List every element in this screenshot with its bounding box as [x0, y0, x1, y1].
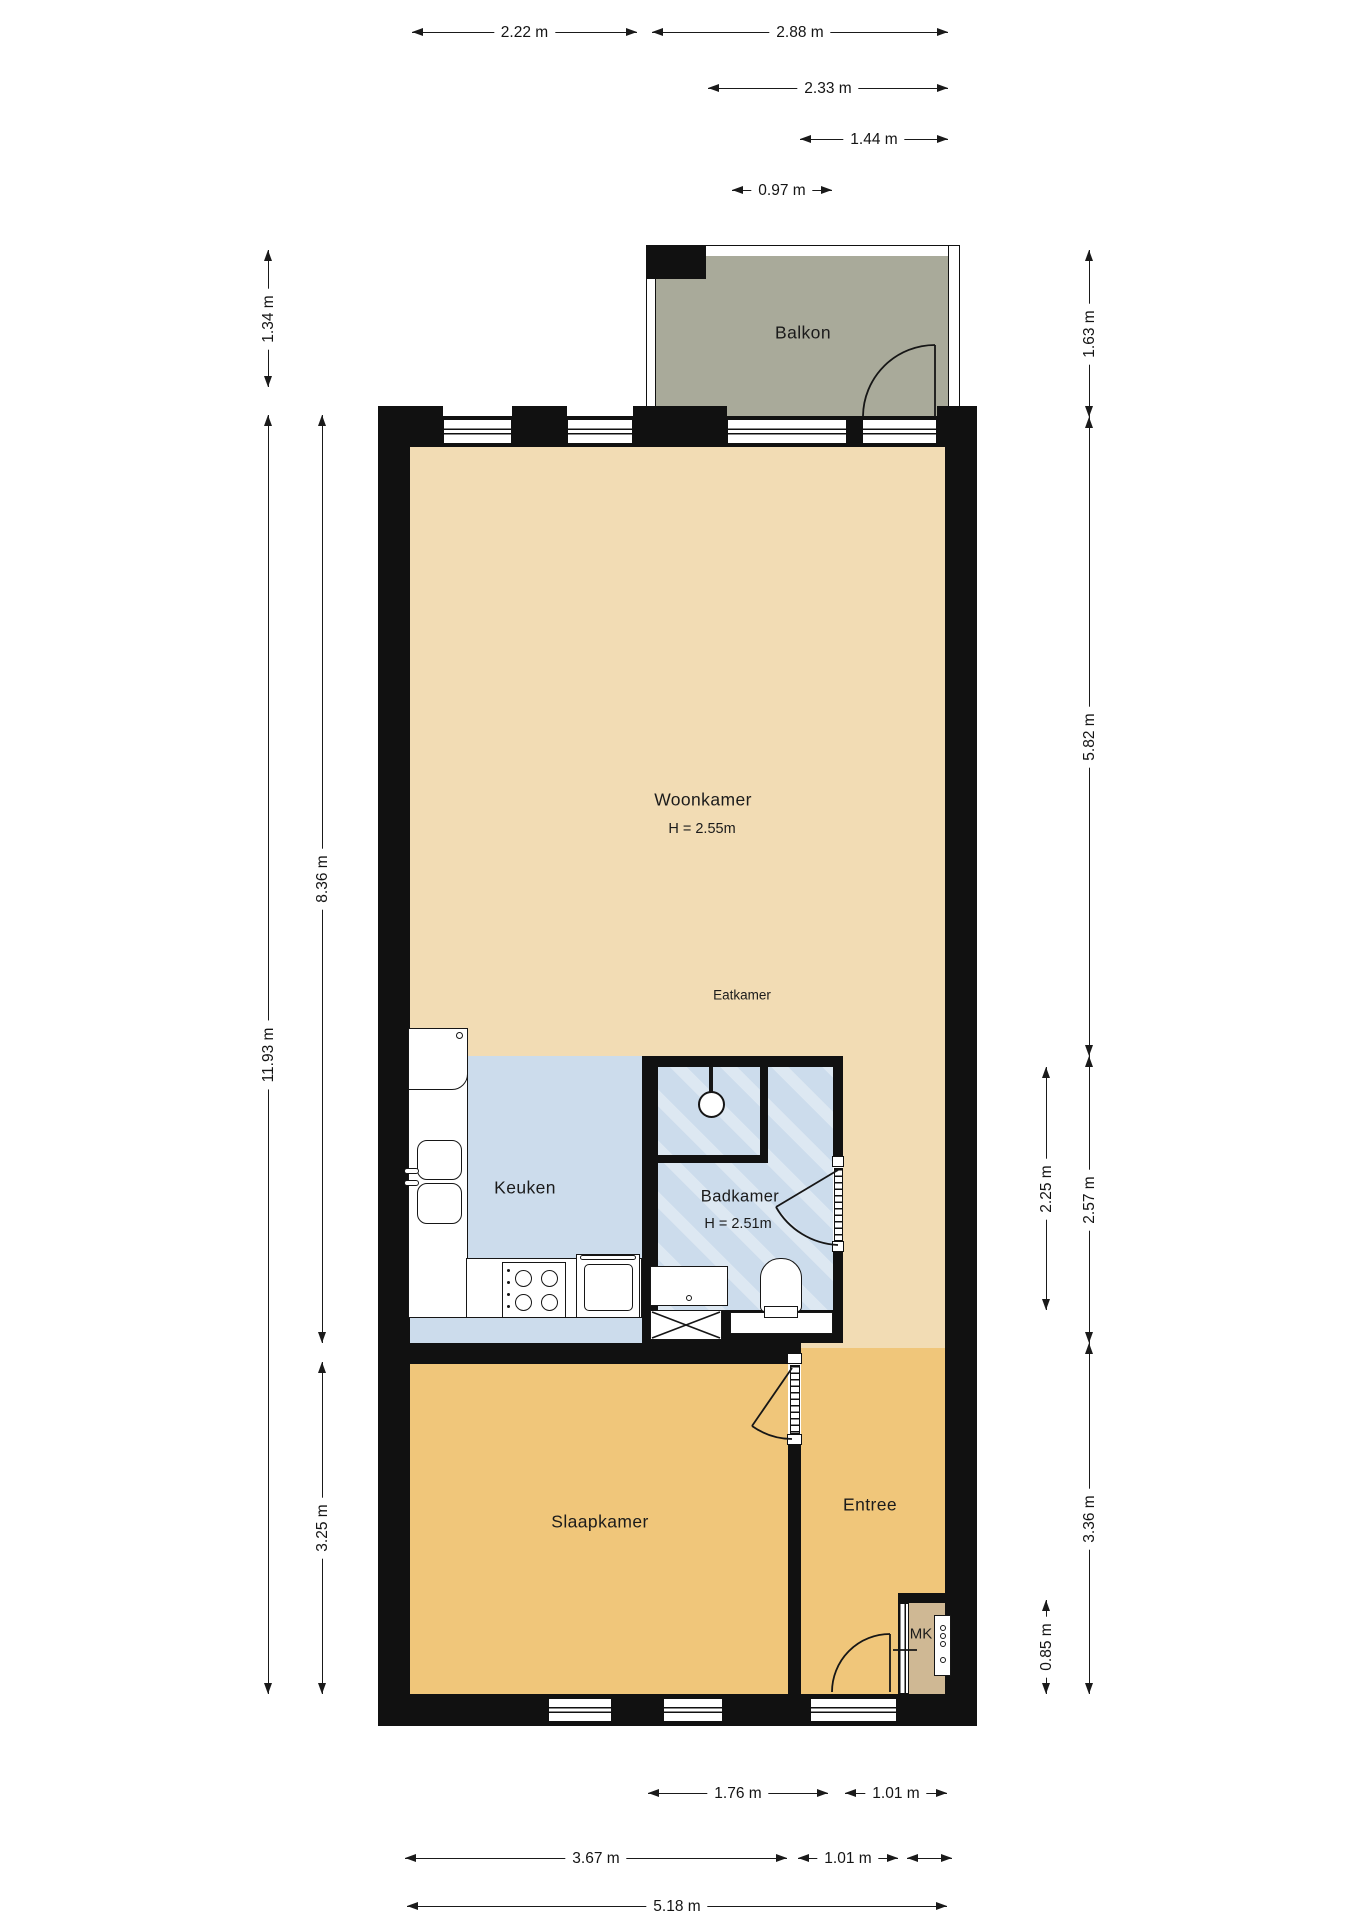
washing-machine: [650, 1310, 722, 1340]
stove-knob: [507, 1305, 510, 1308]
badkamer-door-jamb: [832, 1156, 844, 1167]
dim-right-4: 2.57 m: [1089, 1056, 1090, 1343]
dim-label: 1.01 m: [817, 1850, 878, 1868]
dim-label: 5.18 m: [646, 1898, 707, 1916]
dim-label: 8.36 m: [314, 848, 332, 909]
badkamer-height-label: H = 2.51m: [704, 1216, 771, 1232]
dim-label: 1.63 m: [1081, 303, 1099, 364]
dim-label: 1.34 m: [260, 288, 278, 349]
meter-dial: [940, 1633, 946, 1639]
balcony-corner-block: [646, 245, 706, 279]
dim-top-4: 1.44 m: [800, 139, 948, 140]
kitchen-appliance-handle: [580, 1255, 636, 1260]
shower-wall-vertical: [760, 1067, 768, 1163]
dim-bottom-1: 1.76 m: [648, 1793, 828, 1794]
woonkamer-label: Woonkamer: [654, 790, 752, 811]
wall-pier: [633, 406, 727, 447]
mk-door: [898, 1603, 909, 1694]
washbasin-faucet: [686, 1295, 692, 1301]
dim-label: 11.93 m: [260, 1020, 278, 1089]
window-woonkamer-1: [443, 419, 512, 444]
dim-label: 2.25 m: [1038, 1158, 1056, 1219]
stove-burner: [541, 1270, 558, 1287]
stove-burner: [515, 1270, 532, 1287]
sink-faucet: [404, 1168, 419, 1174]
dim-label: 0.97 m: [751, 182, 812, 200]
dim-bottom-2: 1.01 m: [845, 1793, 947, 1794]
dim-right-1: 1.63 m: [1089, 250, 1090, 417]
dim-label: 0.85 m: [1038, 1616, 1056, 1677]
slaapkamer-door-jamb: [787, 1434, 802, 1445]
balkon-label: Balkon: [775, 323, 831, 344]
dim-label: 3.36 m: [1081, 1488, 1099, 1549]
sink-basin-2: [417, 1183, 462, 1224]
dim-left-1: 1.34 m: [268, 250, 269, 387]
dim-right-2: 5.82 m: [1089, 417, 1090, 1056]
dim-label: 3.25 m: [314, 1497, 332, 1558]
dim-label: 2.33 m: [797, 80, 858, 98]
entree-label: Entree: [843, 1495, 897, 1516]
wall-right: [945, 416, 977, 1726]
meter-dial: [940, 1657, 946, 1663]
balcony-wall-right: [948, 245, 960, 417]
cabinet-knob: [456, 1032, 463, 1039]
stove: [502, 1262, 566, 1318]
front-door-sill: [810, 1698, 897, 1722]
window-woonkamer-2: [567, 419, 633, 444]
stove-knob: [507, 1293, 510, 1296]
dim-bottom-3: 3.67 m: [405, 1858, 787, 1859]
badkamer-door-jamb: [832, 1241, 844, 1252]
dim-right-6: 0.85 m: [1046, 1600, 1047, 1694]
stove-burner: [541, 1294, 558, 1311]
dim-left-4: 3.25 m: [322, 1362, 323, 1694]
slaapkamer-door-jamb: [787, 1353, 802, 1364]
dim-right-5: 3.36 m: [1089, 1343, 1090, 1694]
stove-knob: [507, 1281, 510, 1284]
stove-knob: [507, 1269, 510, 1272]
meter-dial: [940, 1625, 946, 1631]
dim-label: 2.88 m: [769, 24, 830, 42]
dim-top-3: 2.33 m: [708, 88, 948, 89]
mk-wall-top: [898, 1593, 977, 1603]
eatkamer-label: Eatkamer: [713, 988, 771, 1003]
dim-label: 5.82 m: [1081, 706, 1099, 767]
keuken-label: Keuken: [494, 1178, 556, 1199]
mk-label: MK: [910, 1626, 933, 1643]
wall-pier: [378, 406, 443, 447]
dim-top-5: 0.97 m: [732, 190, 832, 191]
dim-label: 1.76 m: [707, 1785, 768, 1803]
dim-bottom-mk: [907, 1858, 952, 1859]
dim-left-2: 8.36 m: [322, 415, 323, 1343]
dim-top-1: 2.22 m: [412, 32, 637, 33]
sink-faucet: [404, 1180, 419, 1186]
shower-head-icon: [698, 1091, 725, 1118]
dim-label: 3.67 m: [565, 1850, 626, 1868]
dim-label: 2.57 m: [1081, 1169, 1099, 1230]
dim-label: 1.44 m: [843, 131, 904, 149]
stove-burner: [515, 1294, 532, 1311]
wall-left: [378, 416, 410, 1726]
toilet-base: [764, 1306, 798, 1318]
dim-top-2: 2.88 m: [652, 32, 948, 33]
dim-label: 1.01 m: [865, 1785, 926, 1803]
kitchen-appliance-door: [584, 1264, 633, 1311]
dim-bottom-5: 5.18 m: [407, 1906, 947, 1907]
window-woonkamer-3: [727, 419, 847, 444]
meter-dial: [940, 1641, 946, 1647]
slaapkamer-label: Slaapkamer: [551, 1512, 648, 1533]
dim-right-3: 2.25 m: [1046, 1067, 1047, 1310]
shower-wall-horizontal: [658, 1155, 768, 1163]
badkamer-label: Badkamer: [701, 1188, 779, 1207]
window-slaapkamer-1: [548, 1698, 612, 1722]
woonkamer-height-label: H = 2.55m: [668, 821, 735, 837]
dim-bottom-4: 1.01 m: [798, 1858, 898, 1859]
wall-main-divider: [410, 1343, 801, 1364]
dim-left-3: 11.93 m: [268, 415, 269, 1694]
wall-pier: [937, 406, 977, 447]
balcony-door-sill: [862, 419, 937, 444]
slaapkamer-door: [790, 1365, 800, 1434]
toilet-bowl: [760, 1258, 802, 1312]
badkamer-door: [834, 1168, 843, 1241]
sink-basin-1: [417, 1140, 462, 1180]
wall-pier: [512, 406, 567, 447]
window-slaapkamer-2: [663, 1698, 723, 1722]
dim-label: 2.22 m: [494, 24, 555, 42]
floor-plan: Balkon Woonkamer H = 2.55m Eatkamer Keuk…: [0, 0, 1358, 1920]
